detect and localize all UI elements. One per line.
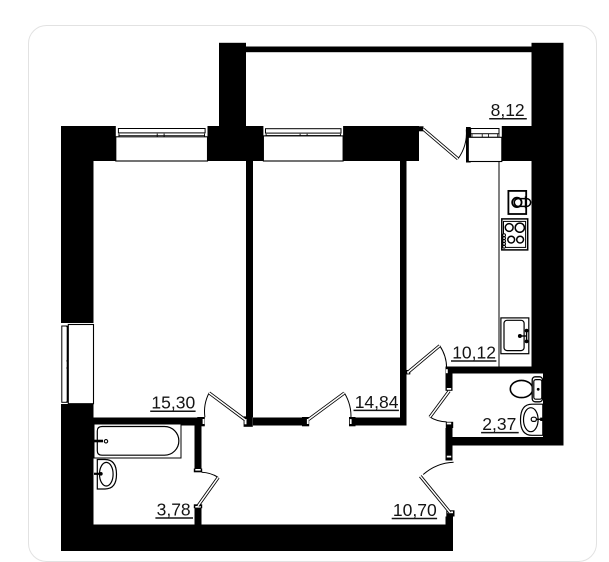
svg-text:10,12: 10,12 (452, 343, 496, 363)
svg-text:3,78: 3,78 (157, 499, 191, 519)
svg-text:2,37: 2,37 (482, 414, 516, 434)
svg-text:14,84: 14,84 (355, 392, 399, 412)
svg-text:8,12: 8,12 (491, 100, 525, 120)
svg-text:10,70: 10,70 (393, 500, 437, 520)
svg-text:15,30: 15,30 (151, 393, 195, 413)
